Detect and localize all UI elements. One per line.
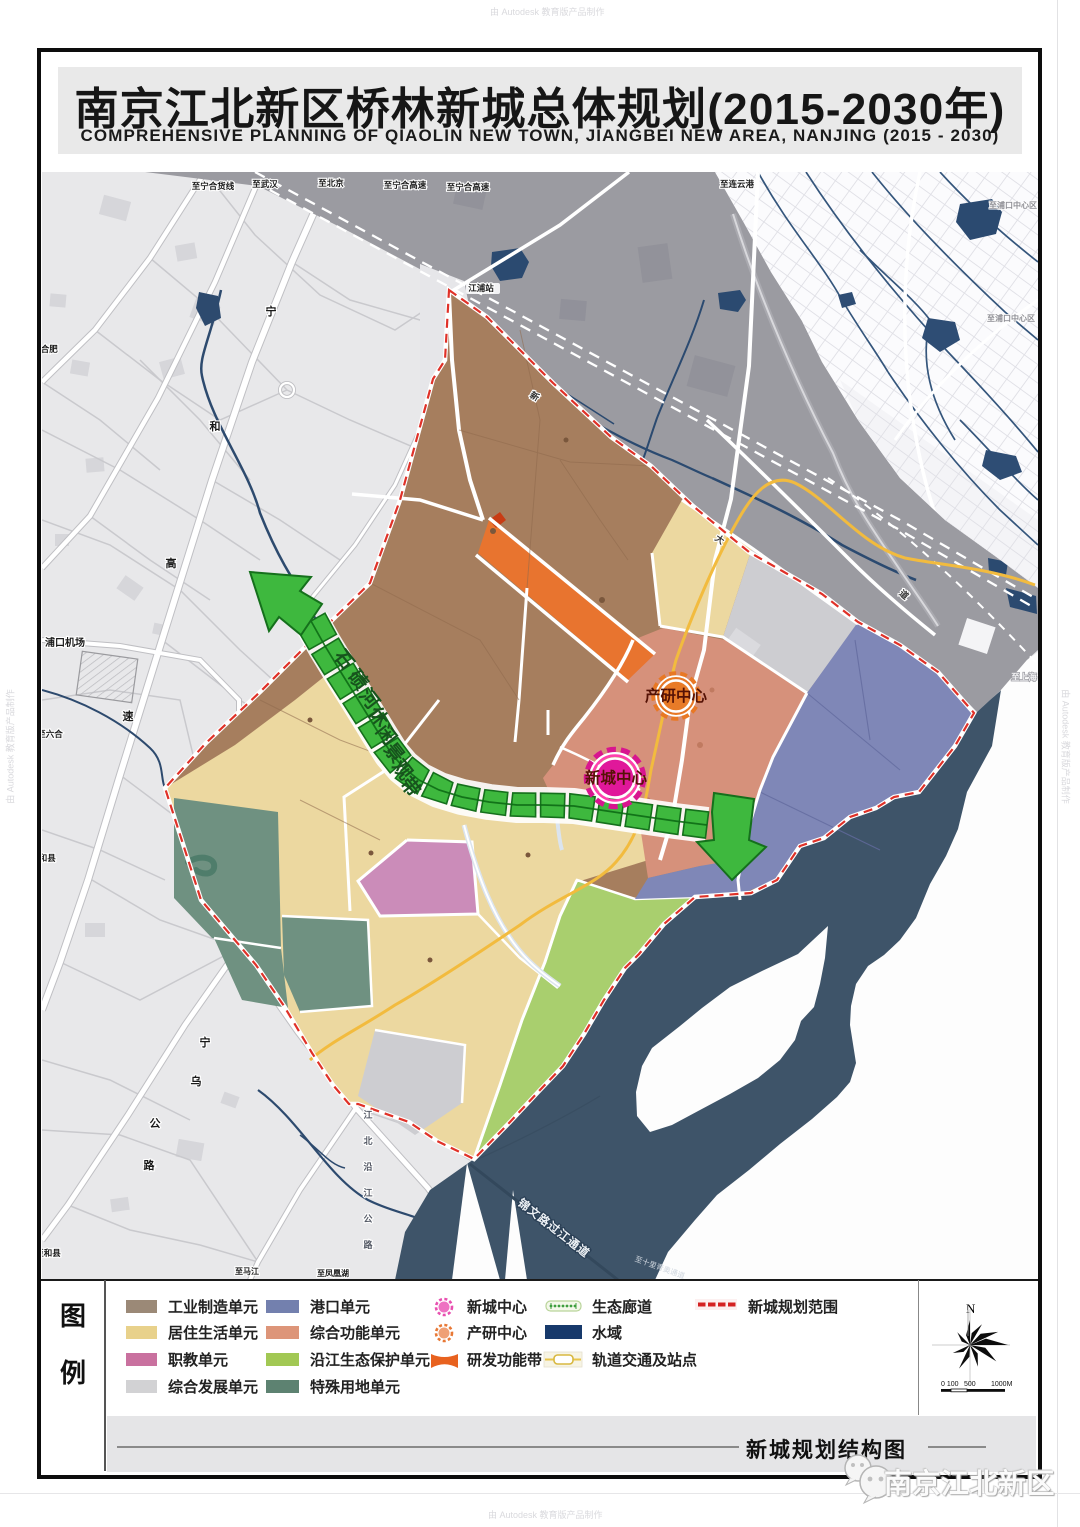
svg-text:1000M: 1000M [991,1381,1013,1388]
svg-text:N: N [966,1301,976,1316]
svg-text:500: 500 [964,1381,976,1388]
svg-text:0 100: 0 100 [941,1381,959,1388]
